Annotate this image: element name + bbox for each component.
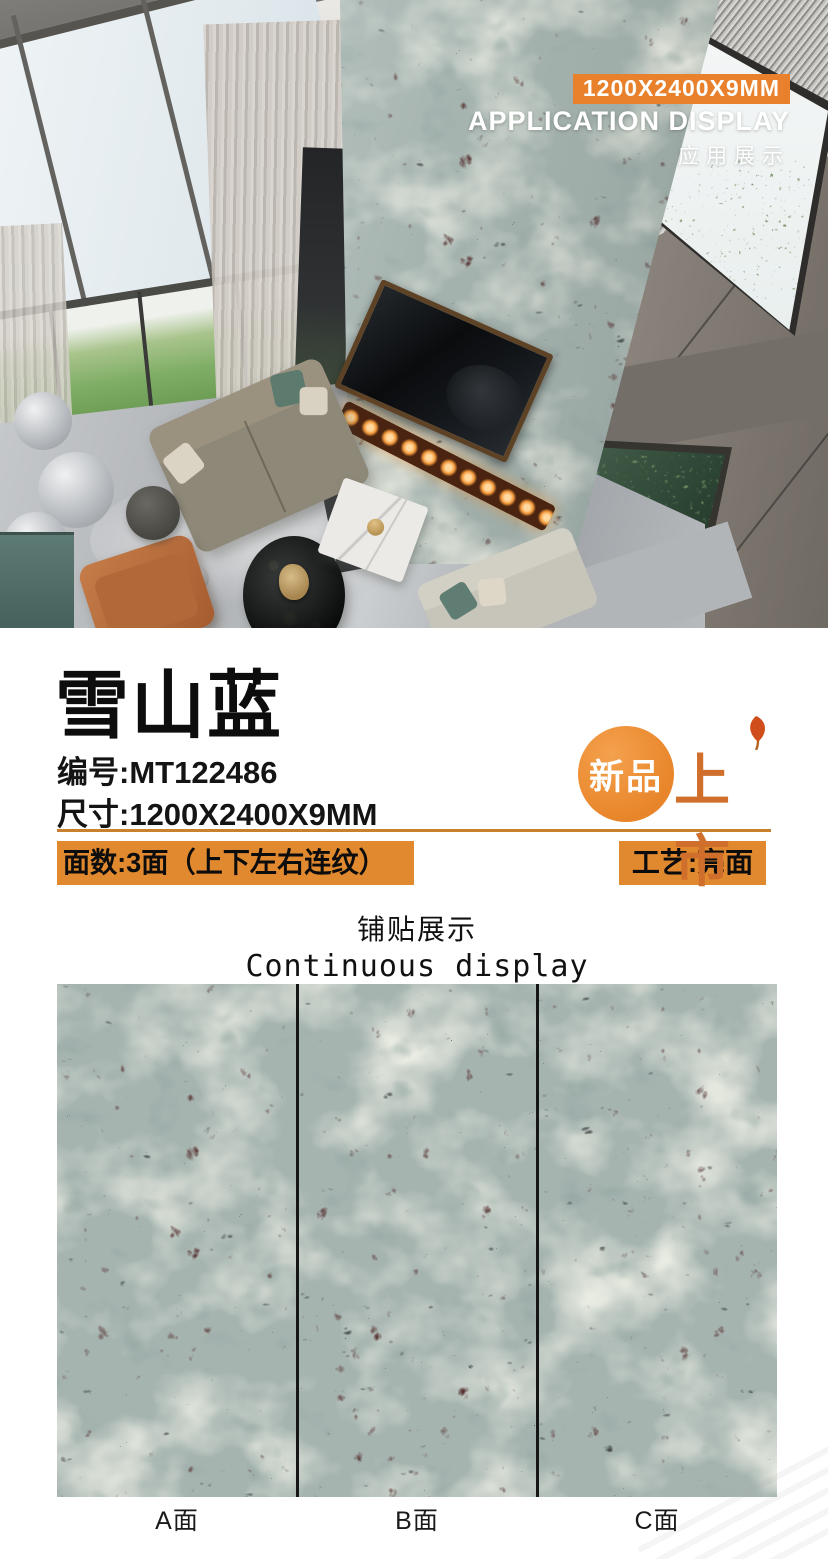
badge-circle: 新品	[578, 726, 674, 822]
pillow	[477, 577, 507, 607]
application-display-subtitle: 应用展示	[0, 140, 790, 170]
panel-divider	[536, 984, 539, 1497]
chair-seat	[93, 552, 201, 628]
product-poster: 1200X2400X9MM APPLICATION DISPLAY 应用展示 雪…	[0, 0, 828, 1559]
screen-reflection	[435, 353, 535, 445]
table-decor	[279, 564, 309, 600]
application-photo: 1200X2400X9MM APPLICATION DISPLAY 应用展示	[0, 0, 828, 628]
tiling-heading-cn: 铺贴展示	[57, 908, 777, 948]
new-arrival-badge: 新品 上市	[578, 720, 778, 832]
panel-labels: A面 B面 C面	[57, 1501, 777, 1537]
tiling-heading-en: Continuous display	[57, 949, 777, 984]
panel-divider	[296, 984, 299, 1497]
marble-panels	[57, 984, 777, 1497]
panel-label-a: A面	[57, 1501, 297, 1537]
tiling-heading: 铺贴展示 Continuous display	[57, 908, 777, 984]
panel-label-b: B面	[297, 1501, 537, 1537]
glass-cabinet	[0, 532, 74, 628]
product-code-row: 编号:MT122486	[57, 747, 278, 792]
round-side-table	[126, 486, 180, 540]
dimension-value: 1200X2400X9MM	[129, 797, 377, 832]
size-badge: 1200X2400X9MM	[573, 74, 790, 104]
sculpture	[14, 392, 72, 450]
dimension-label: 尺寸:	[57, 797, 129, 832]
product-dimension-row: 尺寸:1200X2400X9MM	[57, 789, 378, 834]
product-name: 雪山蓝	[55, 646, 283, 753]
gold-bowl	[365, 516, 387, 538]
application-display-title: APPLICATION DISPLAY	[0, 106, 790, 137]
pillow	[300, 387, 328, 415]
leaf-icon	[738, 714, 772, 750]
code-label: 编号:	[57, 755, 129, 790]
code-value: MT122486	[129, 755, 277, 790]
panel-label-c: C面	[537, 1501, 777, 1537]
badge-side-text: 上市	[674, 736, 778, 898]
photo-caption: 1200X2400X9MM APPLICATION DISPLAY 应用展示	[0, 74, 828, 170]
faces-info-bar: 面数:3面（上下左右连纹）	[57, 841, 414, 885]
